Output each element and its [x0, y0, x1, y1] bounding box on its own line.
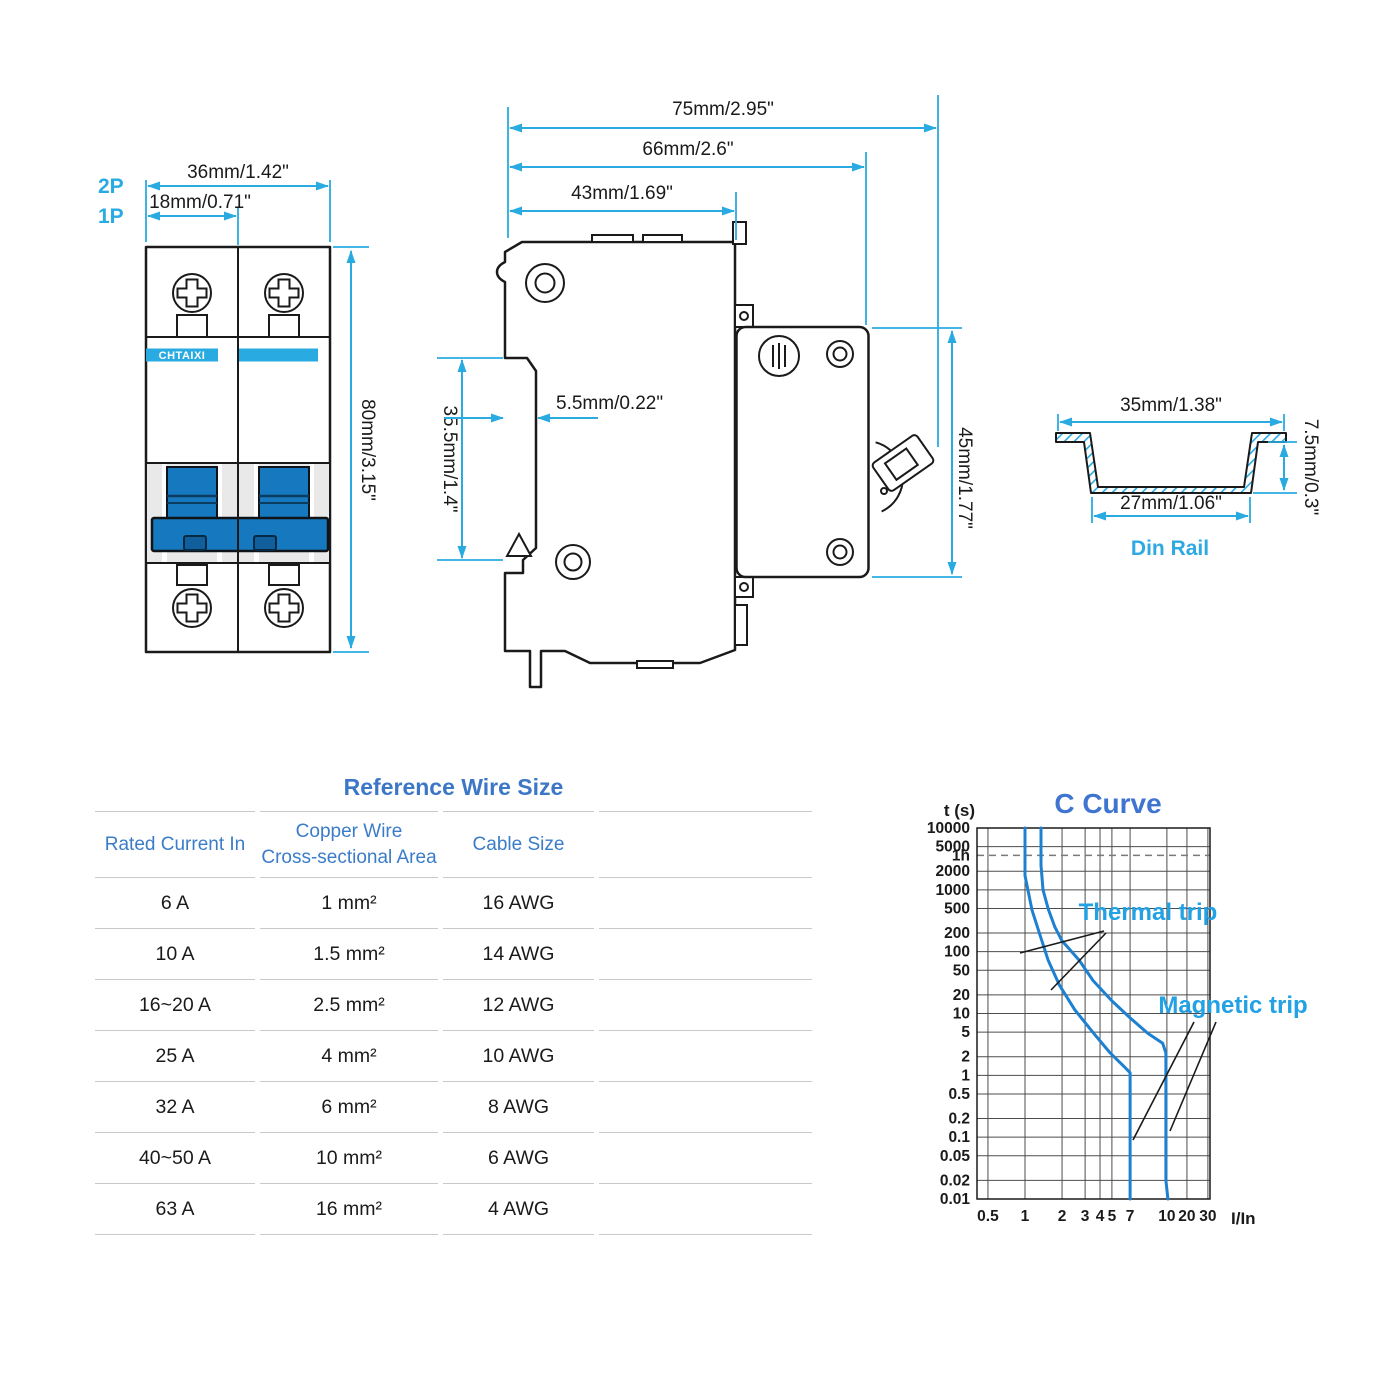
din-rail-label: Din Rail [1131, 537, 1209, 560]
y-tick-label: 0.1 [948, 1129, 970, 1146]
y-axis-label: t (s) [944, 801, 975, 820]
lever-pivot-dot [881, 488, 887, 494]
table-row: 6 A1 mm²16 AWG [95, 877, 812, 928]
column-header-empty [599, 811, 812, 877]
din-width-outer-dimension: 35mm/1.38" [1120, 395, 1222, 416]
y-tick-label: 0.02 [940, 1172, 970, 1189]
table-cell: 1 mm² [260, 877, 438, 928]
pole-count-2p-label: 2P [98, 175, 124, 198]
toggle-tie-bar [152, 518, 328, 551]
x-tick-label: 3 [1081, 1208, 1090, 1225]
y-tick-label: 0.01 [940, 1191, 971, 1208]
din-depth-dimension: 7.5mm/0.3" [1300, 419, 1321, 516]
y-tick-label: 2 [961, 1049, 970, 1066]
table-row: 63 A16 mm²4 AWG [95, 1183, 812, 1234]
hinge-block-bottom [735, 577, 753, 597]
table-bottom-border [95, 1234, 812, 1235]
bottom-tab [637, 661, 673, 668]
side-rail-slot-depth-dimension: 5.5mm/0.22" [556, 393, 663, 414]
din-rail-profile [1056, 433, 1286, 493]
side-height-right-dimension: 45mm/1.77" [954, 427, 975, 529]
hinge-block-top [735, 305, 753, 327]
din-width-inner-dimension: 27mm/1.06" [1120, 493, 1222, 514]
top-tab [643, 235, 682, 242]
pole-count-1p-label: 1P [98, 205, 124, 228]
chart-plot-area: 0.51234571020301000050001h20001000500200… [927, 820, 1217, 1225]
side-depth-front-dimension: 43mm/1.69" [571, 183, 673, 204]
toggle-side [733, 222, 746, 244]
table-cell-empty [599, 1183, 812, 1234]
y-tick-label: 200 [944, 925, 970, 942]
x-tick-label: 1 [1021, 1208, 1030, 1225]
table-cell: 6 A [95, 877, 255, 928]
y-tick-label: 100 [944, 944, 970, 961]
y-tick-label: 5 [961, 1024, 970, 1041]
table-cell: 16 mm² [260, 1183, 438, 1234]
column-header-rated-current: Rated Current In [95, 811, 255, 877]
y-tick-label: 1 [961, 1067, 970, 1084]
x-tick-label: 10 [1158, 1208, 1175, 1225]
breaker-side-profile [497, 242, 735, 687]
terminal-slot [177, 565, 207, 585]
table-cell: 32 A [95, 1081, 255, 1132]
table-cell: 63 A [95, 1183, 255, 1234]
x-axis-label: I/In [1231, 1209, 1256, 1228]
table-cell-empty [599, 979, 812, 1030]
table-cell: 4 AWG [443, 1183, 594, 1234]
table-row: 25 A4 mm²10 AWG [95, 1030, 812, 1081]
side-view-drawing: 75mm/2.95" 66mm/2.6" 43mm/1.69" 35.5mm/1… [430, 85, 995, 707]
table-cell: 40~50 A [95, 1132, 255, 1183]
c-curve-chart: 0.51234571020301000050001h20001000500200… [895, 780, 1377, 1246]
y-tick-label: 0.5 [948, 1086, 970, 1103]
table-cell: 14 AWG [443, 928, 594, 979]
table-cell-empty [599, 1030, 812, 1081]
table-cell: 6 AWG [443, 1132, 594, 1183]
y-tick-label: 1000 [936, 882, 970, 899]
table-row: 40~50 A10 mm²6 AWG [95, 1132, 812, 1183]
table-body: 6 A1 mm²16 AWG10 A1.5 mm²14 AWG16~20 A2.… [95, 877, 812, 1235]
thermal-trip-annotation: Thermal trip [1079, 899, 1218, 926]
magnetic-trip-annotation: Magnetic trip [1158, 992, 1307, 1019]
x-tick-label: 5 [1108, 1208, 1117, 1225]
top-tab [592, 235, 633, 242]
terminal-slot [269, 565, 299, 585]
magnetic-trip-leader-line [1170, 1022, 1216, 1131]
thermal-trip-leader-line [1051, 933, 1106, 990]
x-tick-label: 30 [1199, 1208, 1216, 1225]
y-tick-label: 10 [953, 1006, 970, 1023]
y-tick-label: 500 [944, 900, 970, 917]
table-row: 16~20 A2.5 mm²12 AWG [95, 979, 812, 1030]
y-tick-label: 2000 [936, 863, 970, 880]
x-tick-label: 0.5 [977, 1208, 999, 1225]
table-cell: 1.5 mm² [260, 928, 438, 979]
table-cell: 12 AWG [443, 979, 594, 1030]
x-tick-label: 2 [1058, 1208, 1067, 1225]
terminal-slot [177, 315, 207, 337]
table-cell: 10 AWG [443, 1030, 594, 1081]
front-view-drawing: CHTAIXI 36mm/1.42" 18mm/0.71" 2P 1P 80mm… [85, 150, 397, 672]
switch-lever [871, 434, 935, 493]
side-depth-total-dimension: 75mm/2.95" [672, 99, 774, 120]
brand-label: CHTAIXI [159, 350, 206, 362]
reference-wire-size-table: Reference Wire Size Rated Current In Cop… [95, 768, 812, 1235]
table-cell: 2.5 mm² [260, 979, 438, 1030]
column-header-cable-size: Cable Size [443, 811, 594, 877]
y-tick-label: 10000 [927, 820, 970, 837]
table-cell: 25 A [95, 1030, 255, 1081]
rear-tab [735, 605, 747, 645]
table-cell-empty [599, 1132, 812, 1183]
table-cell: 6 mm² [260, 1081, 438, 1132]
side-rail-slot-height-dimension: 35.5mm/1.4" [439, 405, 460, 512]
x-tick-label: 7 [1126, 1208, 1135, 1225]
column-header-copper-wire-line1: Copper Wire [296, 819, 403, 845]
front-width-1p-dimension: 18mm/0.71" [149, 192, 251, 213]
y-tick-label: 20 [953, 987, 970, 1004]
y-tick-label: 0.05 [940, 1148, 971, 1165]
table-row: 32 A6 mm²8 AWG [95, 1081, 812, 1132]
table-cell: 8 AWG [443, 1081, 594, 1132]
product-spec-sheet: CHTAIXI 36mm/1.42" 18mm/0.71" 2P 1P 80mm… [0, 0, 1400, 1400]
chart-title: C Curve [1054, 788, 1161, 819]
table-row: 10 A1.5 mm²14 AWG [95, 928, 812, 979]
column-header-copper-wire: Copper Wire Cross-sectional Area [260, 811, 438, 877]
magnetic-trip-leader-line [1133, 1022, 1194, 1140]
x-tick-label: 20 [1178, 1208, 1195, 1225]
table-cell-empty [599, 1081, 812, 1132]
din-clip [507, 534, 531, 556]
table-cell: 10 A [95, 928, 255, 979]
table-cell: 16~20 A [95, 979, 255, 1030]
brand-band-right [239, 349, 318, 362]
table-cell-empty [599, 928, 812, 979]
column-header-copper-wire-line2: Cross-sectional Area [261, 845, 436, 871]
table-title: Reference Wire Size [95, 768, 812, 811]
table-header-row: Rated Current In Copper Wire Cross-secti… [95, 811, 812, 877]
x-tick-label: 4 [1096, 1208, 1105, 1225]
y-tick-label: 50 [953, 962, 970, 979]
y-tick-label: 1h [952, 847, 970, 864]
table-cell: 16 AWG [443, 877, 594, 928]
terminal-slot [269, 315, 299, 337]
side-depth-body-dimension: 66mm/2.6" [642, 139, 733, 160]
front-height-dimension: 80mm/3.15" [357, 399, 378, 501]
y-tick-label: 0.2 [948, 1111, 970, 1128]
din-rail-drawing: 35mm/1.38" 27mm/1.06" 7.5mm/0.3" Din Rai… [1040, 390, 1340, 568]
toggle-handle-right [259, 467, 309, 518]
front-width-2p-dimension: 36mm/1.42" [187, 162, 289, 183]
toggle-handle-left [167, 467, 217, 518]
table-cell: 10 mm² [260, 1132, 438, 1183]
table-cell: 4 mm² [260, 1030, 438, 1081]
table-cell-empty [599, 877, 812, 928]
